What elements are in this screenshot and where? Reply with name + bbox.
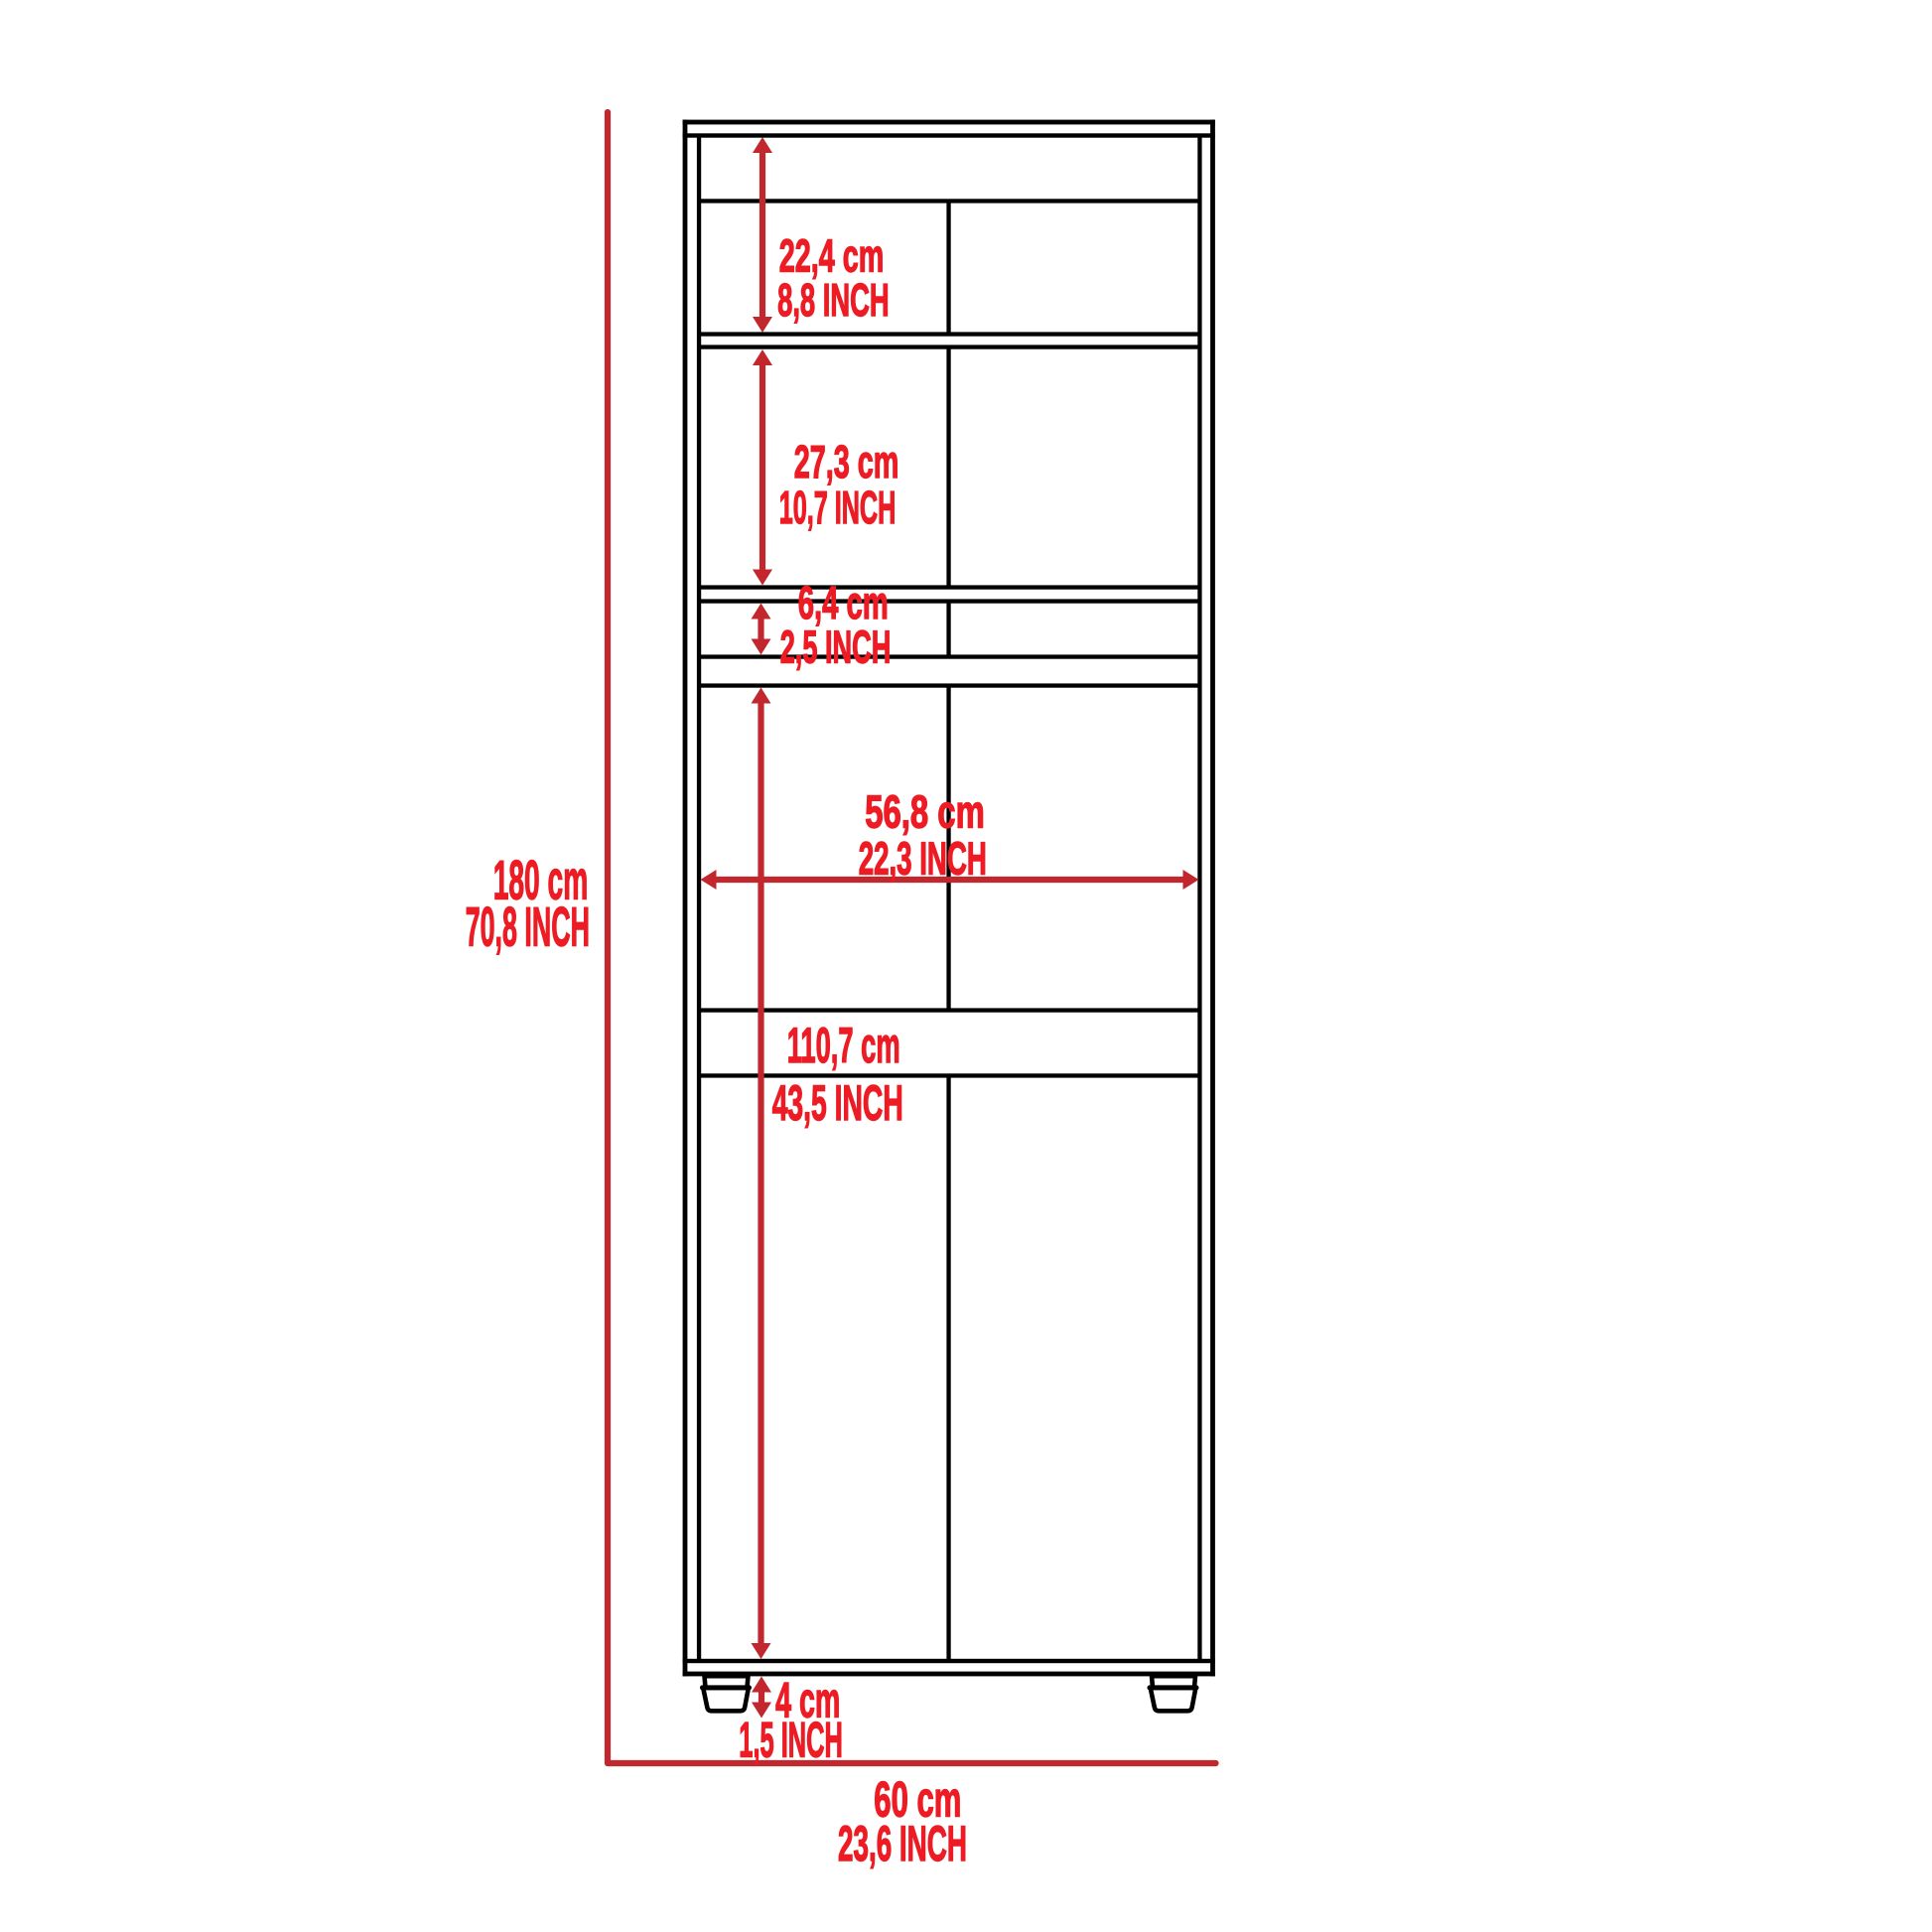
svg-text:27,3 cm: 27,3 cm	[794, 436, 899, 487]
svg-text:43,5 INCH: 43,5 INCH	[772, 1075, 903, 1131]
svg-text:56,8 cm: 56,8 cm	[865, 785, 985, 837]
svg-text:70,8 INCH: 70,8 INCH	[466, 895, 590, 957]
svg-text:8,8 INCH: 8,8 INCH	[777, 274, 890, 326]
svg-text:22,3 INCH: 22,3 INCH	[859, 833, 987, 885]
svg-text:110,7 cm: 110,7 cm	[787, 1018, 900, 1073]
svg-text:10,7 INCH: 10,7 INCH	[779, 482, 897, 533]
svg-text:23,6 INCH: 23,6 INCH	[838, 1816, 967, 1871]
svg-text:1,5 INCH: 1,5 INCH	[739, 1713, 843, 1768]
svg-text:2,5 INCH: 2,5 INCH	[780, 621, 892, 672]
